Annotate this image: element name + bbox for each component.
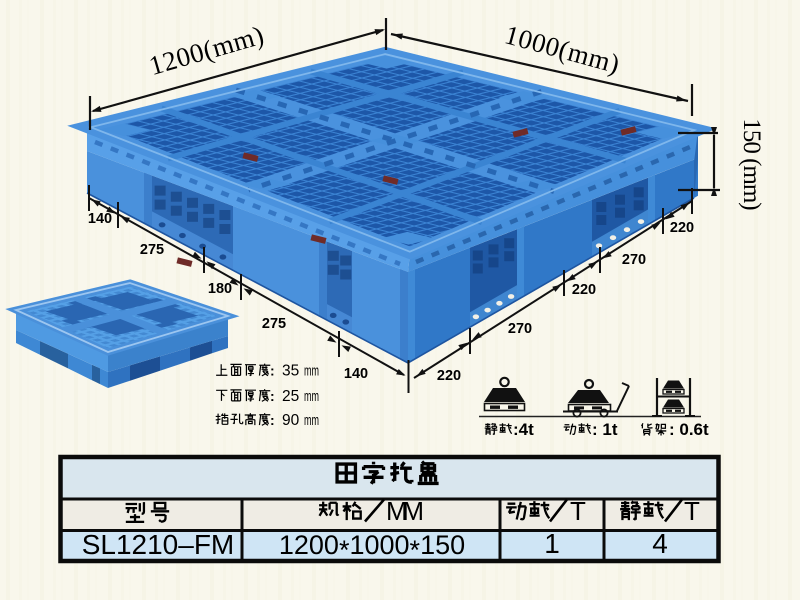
svg-text:25: 25 xyxy=(282,388,299,405)
svg-text:270: 270 xyxy=(622,252,646,268)
svg-text:90: 90 xyxy=(282,412,300,429)
svg-text:mm: mm xyxy=(304,363,319,380)
svg-text:270: 270 xyxy=(508,321,532,337)
svg-text::: : xyxy=(270,412,275,428)
svg-text:: 0.6t: : 0.6t xyxy=(669,420,709,439)
svg-text:SL1210–FM: SL1210–FM xyxy=(82,529,235,560)
svg-text:180: 180 xyxy=(208,281,232,297)
svg-text:220: 220 xyxy=(437,368,461,384)
svg-text:1200*1000*150: 1200*1000*150 xyxy=(279,530,465,565)
svg-text:MM: MM xyxy=(386,496,424,526)
svg-text:: 1t: : 1t xyxy=(592,420,618,439)
svg-text::: : xyxy=(270,388,275,404)
svg-text:140: 140 xyxy=(88,211,112,227)
svg-text:mm: mm xyxy=(304,412,319,429)
svg-text::4t: :4t xyxy=(513,420,534,439)
svg-text::: : xyxy=(270,363,275,379)
svg-text:35: 35 xyxy=(282,363,299,380)
svg-text:4: 4 xyxy=(652,528,668,559)
svg-text:275: 275 xyxy=(140,242,164,258)
svg-text:220: 220 xyxy=(572,282,596,298)
svg-text:1: 1 xyxy=(544,528,560,559)
svg-text:150 (mm): 150 (mm) xyxy=(738,118,765,210)
svg-text:140: 140 xyxy=(344,366,368,382)
svg-text:275: 275 xyxy=(262,316,286,332)
svg-text:mm: mm xyxy=(304,388,319,405)
svg-text:T: T xyxy=(570,496,586,526)
svg-text:T: T xyxy=(684,496,700,526)
svg-text:220: 220 xyxy=(670,220,694,236)
